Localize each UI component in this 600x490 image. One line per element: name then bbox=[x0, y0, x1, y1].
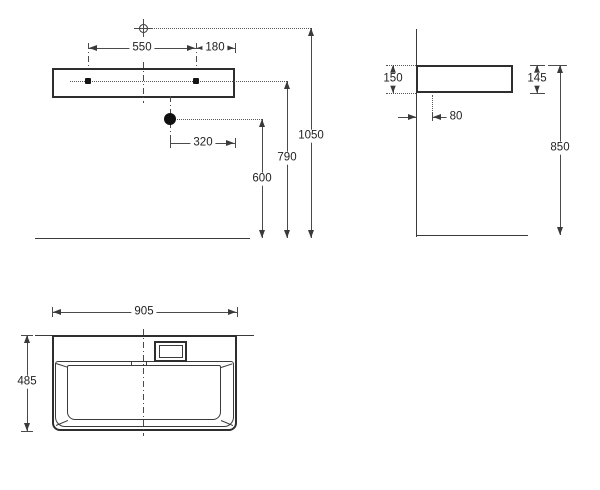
bowl-bottom-outline bbox=[67, 365, 221, 420]
dim-150-arrow-bottom bbox=[390, 85, 396, 93]
dim-label-width: 905 bbox=[131, 306, 156, 319]
dim-label-hole-to-edge: 180 bbox=[202, 42, 227, 55]
drain-marker bbox=[164, 113, 176, 125]
dim-485-arrow-bottom bbox=[24, 423, 30, 431]
dim-320-arrow-right bbox=[226, 140, 234, 146]
drain-height-dotted-line bbox=[177, 119, 262, 120]
dim-600-arrow-top bbox=[259, 119, 265, 127]
dim-label-drain-height: 600 bbox=[249, 173, 274, 186]
dim-320-right-tick bbox=[235, 138, 236, 148]
fixing-hole-right-marker bbox=[193, 78, 199, 84]
dim-850-arrow-bottom bbox=[557, 227, 563, 235]
basin-side-outline bbox=[416, 65, 513, 93]
floor-line-side bbox=[417, 235, 528, 236]
dim-145-arrow-bottom bbox=[534, 85, 540, 93]
dim-label-mount-height: 1050 bbox=[295, 130, 327, 143]
dim-label-front-height: 145 bbox=[524, 73, 549, 86]
dim-485-tick-bottom bbox=[21, 431, 33, 432]
wall-line bbox=[416, 29, 417, 237]
basin-centerline bbox=[143, 62, 144, 103]
mount-height-dotted-line bbox=[154, 28, 311, 29]
dim-850-arrow-top bbox=[557, 65, 563, 73]
fixing-holes-dotted-line bbox=[70, 81, 287, 82]
dim-550-arrow-right bbox=[187, 45, 195, 51]
dim-905-arrow-right bbox=[228, 309, 236, 315]
dim-label-back-height: 150 bbox=[380, 73, 405, 86]
dim-150-ext-bottom bbox=[386, 93, 416, 94]
dim-145-tick-bottom bbox=[530, 93, 545, 94]
dim-1050-arrow-bottom bbox=[308, 230, 314, 238]
dim-label-rim-height: 850 bbox=[547, 142, 572, 155]
technical-drawing-washbasin: 550 180 320 600 790 1050 bbox=[0, 0, 600, 490]
dim-600-arrow-bottom bbox=[259, 230, 265, 238]
crosshair-horizontal-line bbox=[134, 28, 153, 29]
dim-label-hole-height: 790 bbox=[274, 152, 299, 165]
dim-1050-arrow-top bbox=[308, 28, 314, 36]
dim-905-arrow-left bbox=[53, 309, 61, 315]
dim-550-arrow-left bbox=[89, 45, 97, 51]
fixing-hole-left-marker bbox=[85, 78, 91, 84]
dim-790-arrow-top bbox=[284, 81, 290, 89]
tap-hole-inner bbox=[159, 345, 183, 358]
dim-80-arrow-left bbox=[408, 114, 416, 120]
plan-centerline bbox=[143, 329, 144, 436]
floor-line-front bbox=[35, 238, 250, 239]
dim-80-arrow-right bbox=[433, 114, 441, 120]
dim-label-hole-spacing: 550 bbox=[129, 42, 154, 55]
overflow-notch bbox=[131, 361, 147, 366]
dim-180-end-tick bbox=[235, 43, 236, 53]
dim-320-left-tick bbox=[170, 139, 171, 148]
dim-label-drain-wall-offset: 80 bbox=[447, 111, 466, 124]
dim-790-arrow-bottom bbox=[284, 230, 290, 238]
dim-label-depth: 485 bbox=[14, 376, 39, 389]
dim-label-drain-to-edge: 320 bbox=[190, 137, 215, 150]
dim-485-arrow-top bbox=[24, 335, 30, 343]
dim-905-tick-right bbox=[237, 307, 238, 317]
